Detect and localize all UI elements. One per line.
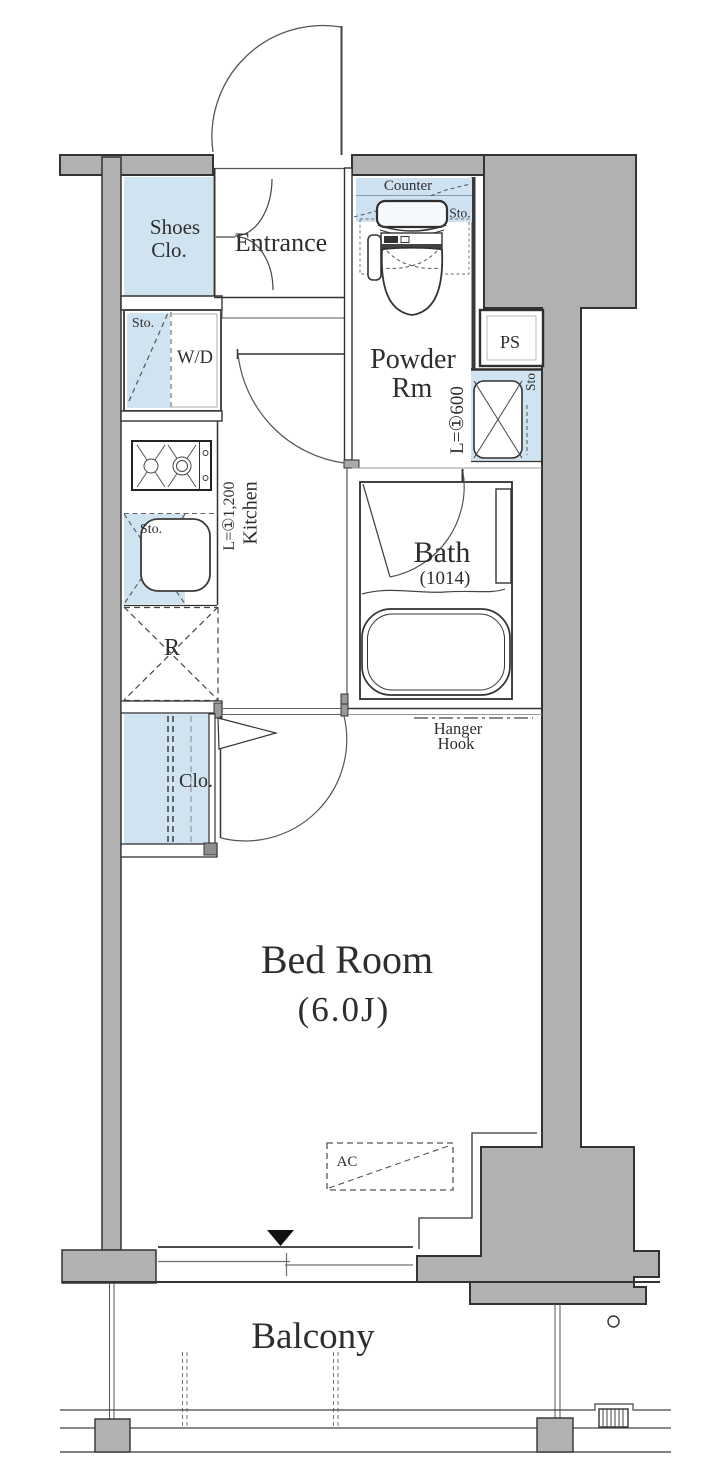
svg-text:L=①1,200: L=①1,200: [221, 481, 238, 550]
svg-text:Sto.: Sto.: [140, 522, 162, 537]
svg-text:Shoes: Shoes: [150, 215, 200, 239]
svg-text:(1014): (1014): [420, 568, 471, 589]
svg-text:W/D: W/D: [177, 348, 213, 368]
svg-text:Clo.: Clo.: [179, 770, 213, 792]
svg-text:Sto: Sto: [523, 373, 538, 391]
svg-text:Balcony: Balcony: [251, 1316, 375, 1357]
svg-text:(6.0J): (6.0J): [298, 990, 391, 1029]
svg-text:Rm: Rm: [392, 373, 433, 404]
svg-text:Bed Room: Bed Room: [261, 937, 433, 982]
svg-text:Counter: Counter: [384, 178, 432, 194]
svg-text:Powder: Powder: [370, 344, 456, 375]
svg-text:Bath: Bath: [414, 536, 471, 569]
svg-text:Sto.: Sto.: [449, 206, 470, 221]
svg-text:R: R: [164, 635, 180, 661]
svg-text:PS: PS: [500, 332, 520, 352]
svg-text:L=①600: L=①600: [447, 386, 468, 454]
svg-text:Clo.: Clo.: [151, 238, 187, 262]
svg-text:AC: AC: [337, 1154, 358, 1170]
svg-text:Hook: Hook: [438, 734, 475, 753]
svg-text:Sto.: Sto.: [132, 316, 154, 331]
svg-text:Kitchen: Kitchen: [240, 481, 262, 544]
